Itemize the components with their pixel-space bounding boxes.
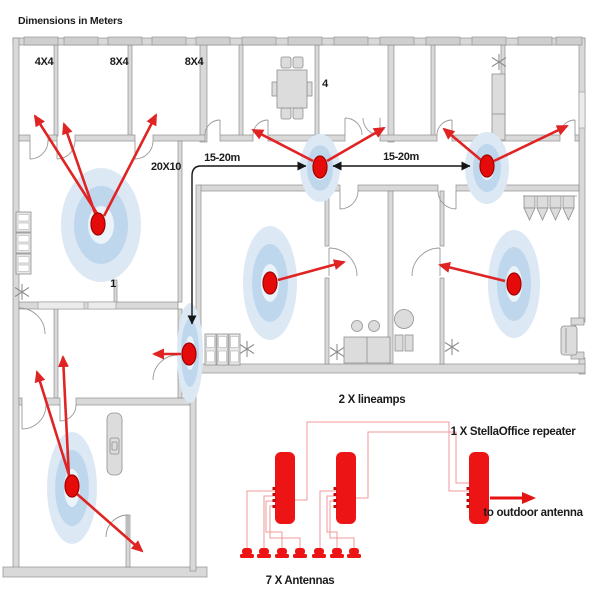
wall-segment [440,191,444,246]
room-label-meeting: 4 [322,78,329,90]
floor-plan-diagram: Dimensions in Meters 4X4 8X4 8X4 4 20X10… [0,0,600,600]
window [24,37,58,45]
wall-segment [190,375,196,571]
door [345,118,362,135]
wall-segment [19,398,22,405]
window [334,37,368,45]
device-ports [273,487,470,508]
wall-segment [579,38,585,322]
antenna-dot [313,156,327,178]
snowflake-icon [240,341,254,357]
door [22,405,46,429]
desk-with-chairs-icon [344,321,390,364]
schematic-antenna-icon [330,548,344,558]
schematic-antenna-icon [347,548,361,558]
wire [295,422,469,500]
door [153,355,178,380]
distance-label-right: 15-20m [383,151,419,163]
window [88,302,116,309]
wire [327,496,337,548]
snowflake-icon [330,344,344,360]
antenna-dot [91,213,105,235]
wall-segment [76,398,190,405]
antennas-count-label: 7 X Antennas [266,575,335,587]
lineamp-1 [275,452,295,524]
cabinet-icon [229,334,240,365]
window [242,37,276,45]
wall-segment [19,135,30,141]
wall-segment [3,567,207,577]
schematic-antenna-icon [275,548,289,558]
door [106,515,128,537]
screenshot-canvas: Dimensions in Meters 4X4 8X4 8X4 4 20X10… [0,0,600,600]
wall-segment [575,135,579,141]
window [38,302,84,309]
meeting-table-icon [272,57,312,119]
cabinet-icon [205,334,216,365]
lineamps-label: 2 X lineamps [339,394,406,406]
door [30,141,48,159]
window [380,37,414,45]
wire [356,432,469,498]
window [556,37,582,45]
wall-segment [239,45,243,136]
wall-segment [358,185,438,191]
antenna-dot [507,273,521,295]
wall-segment [315,45,319,136]
window [288,37,322,45]
window [196,37,230,45]
shelf-rack-icon [16,212,31,232]
round-table-icon [395,310,414,352]
fridge-icon [492,74,505,140]
window [472,37,506,45]
window [518,37,552,45]
coat-rack-icon [523,196,577,220]
window [108,37,142,45]
door [340,191,358,209]
wall-segment [54,45,58,136]
schematic-devices [240,452,489,558]
antenna-dot [65,475,79,497]
cabinet-icon [217,334,228,365]
antenna-dot [182,343,196,365]
wall-segment [431,45,435,136]
window [579,92,585,128]
window [64,37,98,45]
door [19,308,45,334]
outdoor-antenna-label: to outdoor antenna [483,507,583,519]
wall-segment [388,45,394,142]
door [412,248,440,276]
room-label-4x4: 4X4 [35,56,55,68]
wall-segment [268,135,345,141]
signal-arrow [253,130,313,161]
shelf-rack-icon [16,233,31,253]
wall-segment [325,278,329,364]
distance-label-left: 15-20m [204,152,240,164]
room-label-8x4-a: 8X4 [110,56,130,68]
room-label-open-office: 20X10 [151,161,181,173]
door [60,405,76,421]
wall-segment [153,135,205,141]
schematic-antenna-icon [257,548,271,558]
wall-segment [13,38,19,570]
snowflake-icon [445,339,459,355]
wall-segment [196,364,585,373]
wall-segment [54,309,58,398]
diagram-title: Dimensions in Meters [18,15,123,27]
antenna-dot [263,272,277,294]
repeater-label: 1 X StellaOffice repeater [451,426,577,438]
wire [247,491,275,548]
door-fixture-icon [107,413,122,475]
lineamp-2 [336,452,356,524]
room-label-8x4-b: 8X4 [185,56,205,68]
wall-segment [128,45,132,136]
window [152,37,186,45]
antenna-dot [480,155,494,177]
signal-arrow [327,128,384,161]
equipment-schematic: 2 X lineamps 1 X StellaOffice repeater t… [240,394,584,587]
antenna-number-label: 1 [110,278,116,290]
shelf-rack-icon [16,254,31,274]
schematic-antenna-icon [240,548,254,558]
wall-segment [75,135,135,141]
schematic-antenna-icon [293,548,307,558]
schematic-antenna-icon [312,548,326,558]
door-frame [571,318,584,325]
window [426,37,460,45]
wall-segment [220,135,253,141]
armchair-icon [561,326,577,355]
wall-segment [440,278,444,364]
wall-segment [380,135,437,141]
